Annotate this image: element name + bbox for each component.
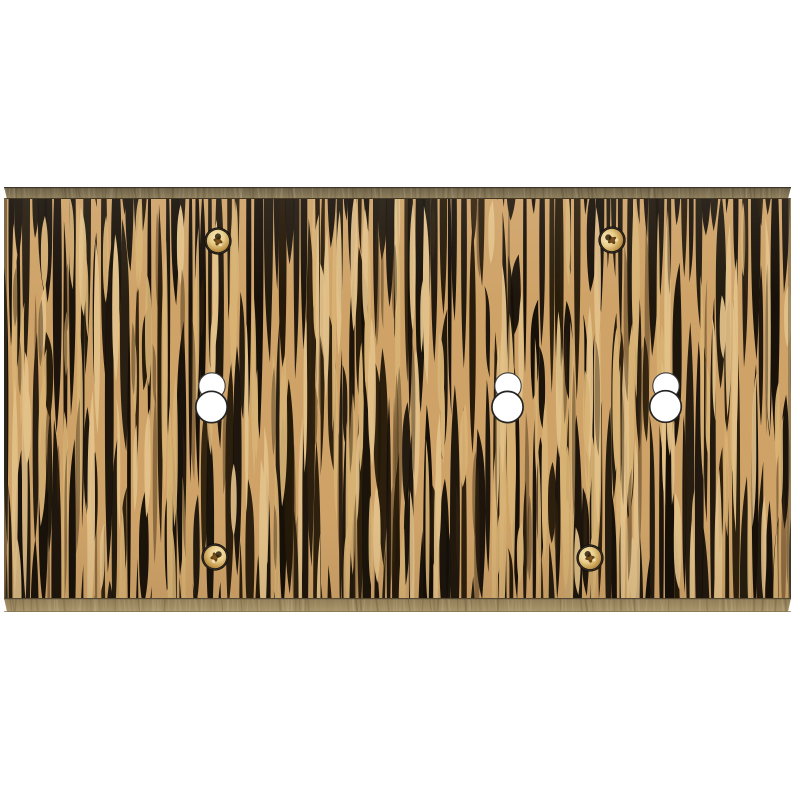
cable-hole	[196, 373, 227, 423]
cable-hole	[492, 373, 523, 423]
wallplate-image	[0, 0, 800, 800]
cable-hole	[650, 373, 682, 423]
wallplate	[0, 0, 800, 800]
product-photo	[0, 0, 800, 800]
bevel-top	[4, 187, 791, 199]
bevel-bottom	[4, 598, 791, 612]
